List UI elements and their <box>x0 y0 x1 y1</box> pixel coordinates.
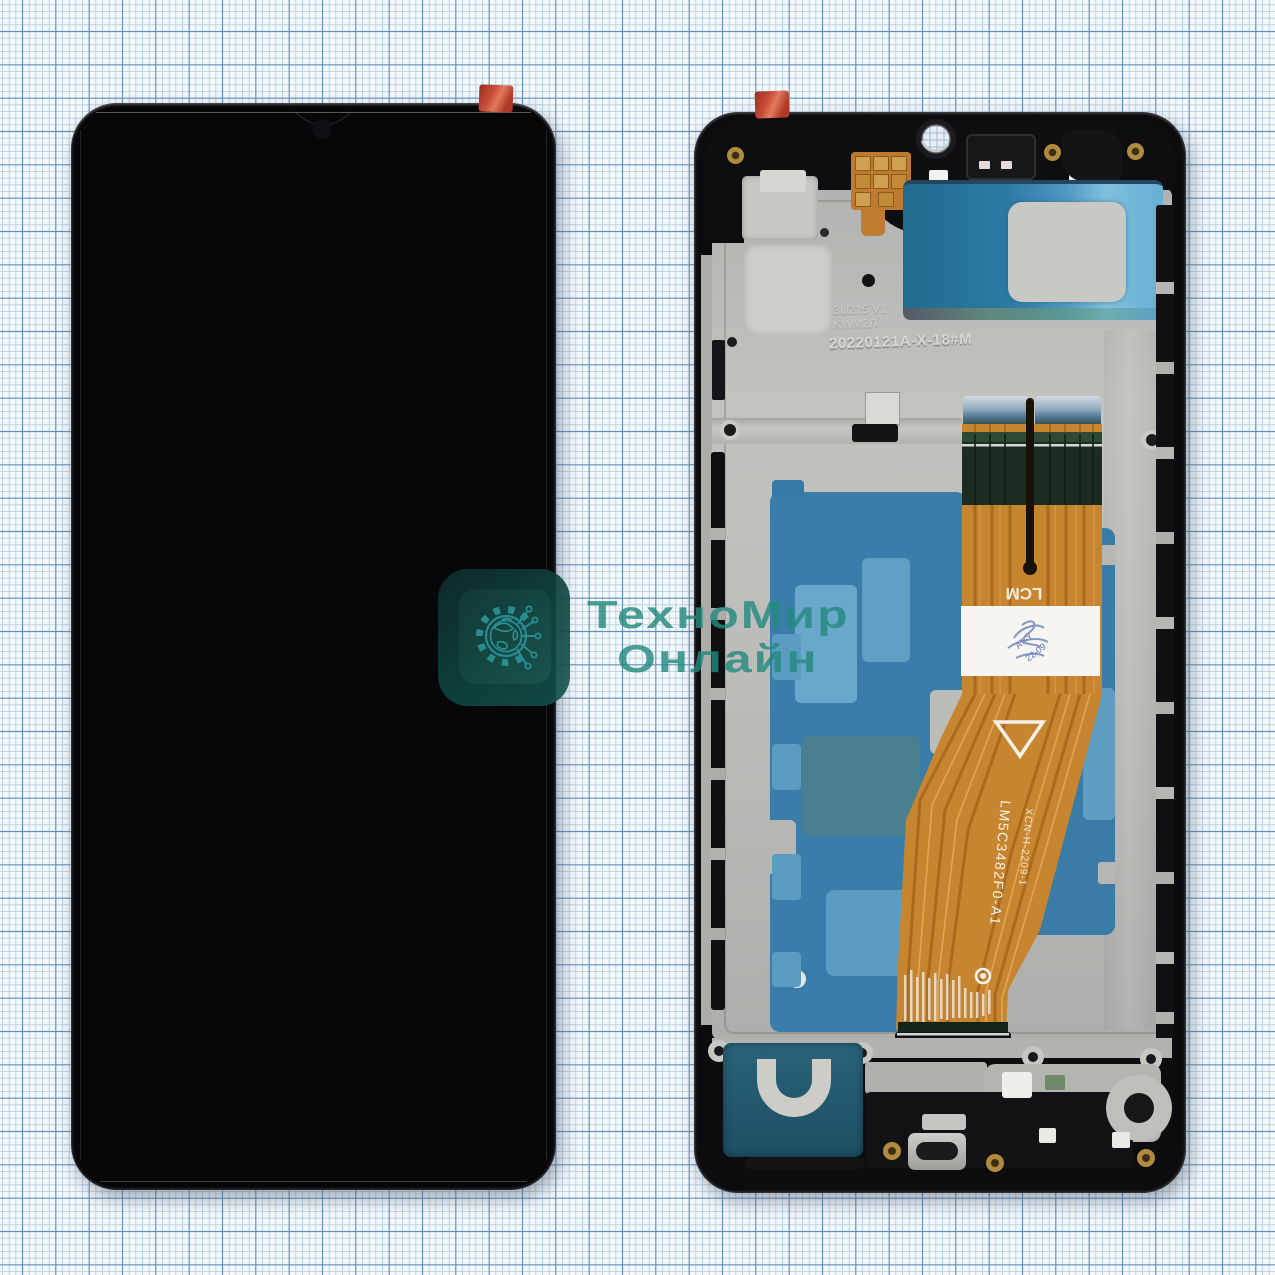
svg-text:LCM: LCM <box>1006 584 1043 603</box>
